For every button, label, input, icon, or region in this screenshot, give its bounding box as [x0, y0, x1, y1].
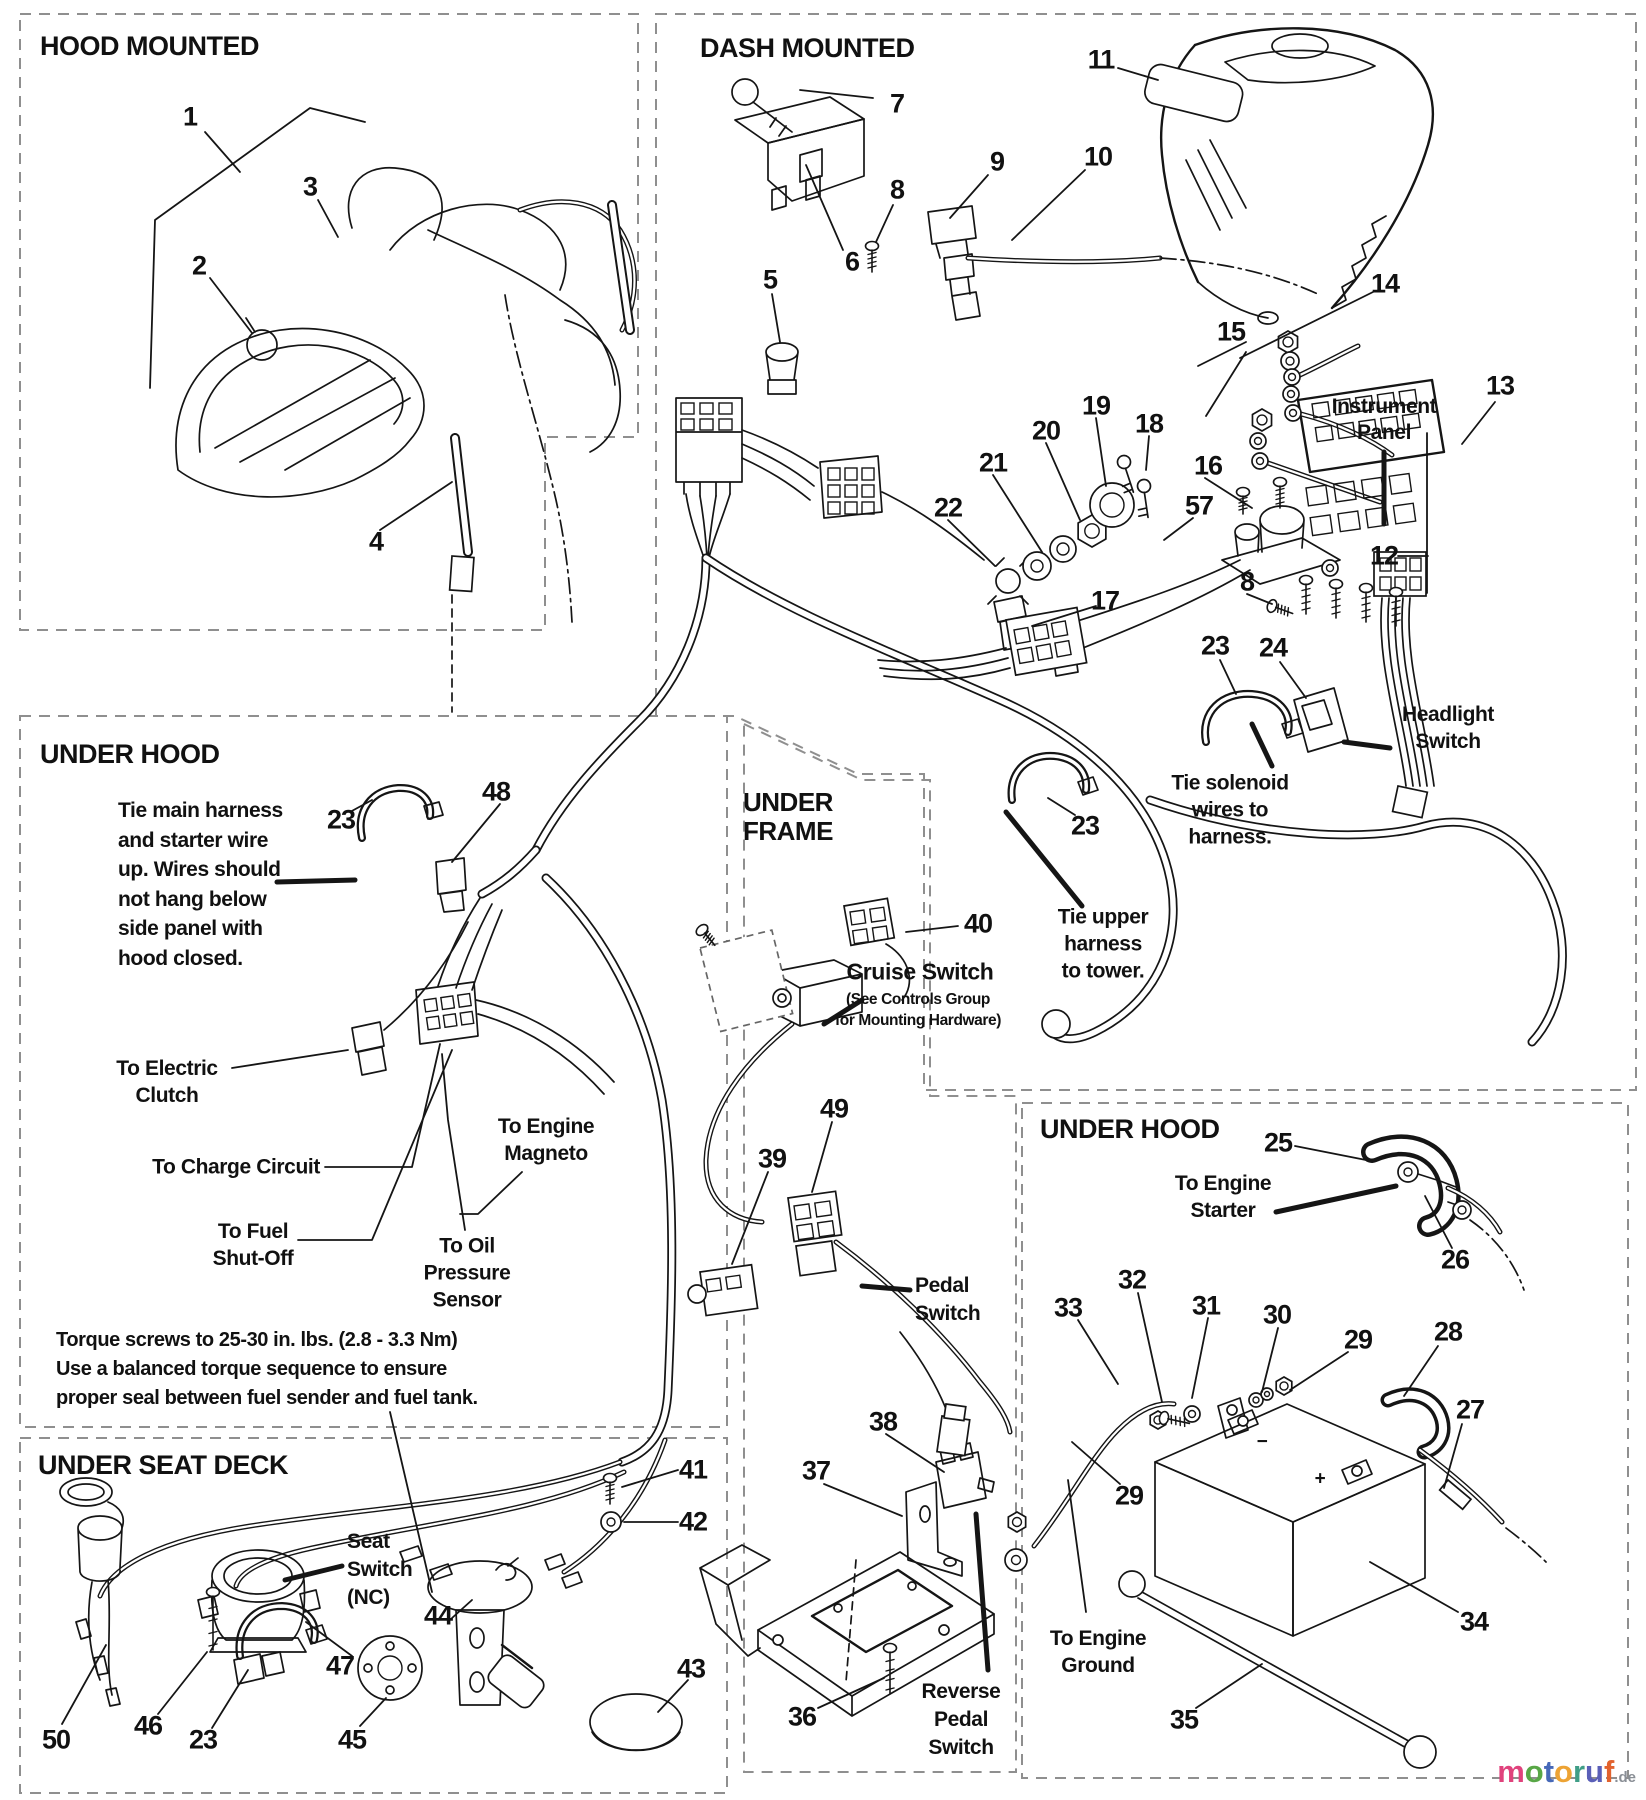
parts-diagram-page: HOOD MOUNTEDDASH MOUNTEDUNDER HOODUNDER …: [0, 0, 1646, 1800]
motoruf-watermark[interactable]: motoruf.de: [1497, 1754, 1636, 1790]
watermark-letter: f: [1604, 1754, 1614, 1789]
part-number-34-54: 34: [1460, 1607, 1488, 1638]
part-number-6-5: 6: [845, 247, 859, 278]
part-number-27-46: 27: [1456, 1395, 1484, 1426]
part-number-40-29: 40: [964, 909, 992, 940]
note-cruise-switch-sub: (See Controls Group for Mounting Hardwar…: [835, 989, 1001, 1031]
note-to-fuel-shut-off: To Fuel Shut-Off: [213, 1218, 294, 1272]
part-number-36-34: 36: [788, 1702, 816, 1733]
part-number-12-11: 12: [1370, 541, 1398, 572]
note-tie-main-note: Tie main harness and starter wire up. Wi…: [118, 796, 283, 973]
part-number-30-49: 30: [1263, 1300, 1291, 1331]
part-number-38-32: 38: [869, 1407, 897, 1438]
part-number-17-16: 17: [1091, 586, 1119, 617]
part-number-4-3: 4: [369, 527, 383, 558]
note-pedal-switch-label: Pedal Switch: [915, 1272, 980, 1328]
watermark-letter: m: [1497, 1754, 1525, 1789]
part-number-22-21: 22: [934, 493, 962, 524]
part-number-15-14: 15: [1217, 317, 1245, 348]
part-number-32-51: 32: [1118, 1265, 1146, 1296]
part-number-9-8: 9: [990, 147, 1004, 178]
note-to-oil-pressure-sensor: To Oil Pressure Sensor: [424, 1233, 511, 1314]
note-to-engine-starter: To Engine Starter: [1175, 1170, 1271, 1224]
part-number-23-25: 23: [1071, 811, 1099, 842]
note-to-engine-ground: To Engine Ground: [1050, 1625, 1146, 1679]
part-number-16-15: 16: [1194, 451, 1222, 482]
watermark-letter: o: [1554, 1754, 1573, 1789]
part-number-46-40: 46: [134, 1711, 162, 1742]
part-number-29-48: 29: [1344, 1325, 1372, 1356]
note-battery-minus: −: [1257, 1433, 1268, 1452]
part-number-44-38: 44: [424, 1601, 452, 1632]
part-number-42-36: 42: [679, 1507, 707, 1538]
part-number-23-43: 23: [189, 1725, 217, 1756]
watermark-letter: u: [1585, 1754, 1604, 1789]
part-number-45-39: 45: [338, 1725, 366, 1756]
note-tie-upper-note: Tie upper harness to tower.: [1058, 904, 1149, 985]
note-torque-note: Torque screws to 25-30 in. lbs. (2.8 - 3…: [56, 1326, 478, 1413]
watermark-letter: t: [1544, 1754, 1554, 1789]
part-number-1-0: 1: [183, 102, 197, 133]
part-number-14-13: 14: [1371, 269, 1399, 300]
note-battery-plus: +: [1315, 1470, 1326, 1489]
part-number-49-30: 49: [820, 1094, 848, 1125]
watermark-letter: r: [1573, 1754, 1585, 1789]
part-number-5-4: 5: [763, 265, 777, 296]
part-number-33-52: 33: [1054, 1293, 1082, 1324]
section-title-dash-mounted: DASH MOUNTED: [700, 33, 915, 63]
note-seat-switch-label: Seat Switch (NC): [347, 1528, 412, 1612]
part-number-29-53: 29: [1115, 1481, 1143, 1512]
section-title-hood-mounted: HOOD MOUNTED: [40, 31, 259, 61]
section-box-hood-mounted: [20, 14, 638, 630]
note-to-engine-magneto: To Engine Magneto: [498, 1113, 594, 1167]
part-number-43-37: 43: [677, 1654, 705, 1685]
part-number-18-17: 18: [1135, 409, 1163, 440]
part-number-35-55: 35: [1170, 1705, 1198, 1736]
note-instrument-panel: Instrument Panel: [1332, 394, 1437, 446]
part-number-2-1: 2: [192, 251, 206, 282]
part-number-13-12: 13: [1486, 371, 1514, 402]
part-number-10-9: 10: [1084, 142, 1112, 173]
part-number-39-31: 39: [758, 1144, 786, 1175]
note-to-electric-clutch: To Electric Clutch: [116, 1055, 217, 1109]
note-headlight-switch-label: Headlight Switch: [1402, 701, 1494, 755]
part-number-8-7: 8: [890, 175, 904, 206]
part-number-26-45: 26: [1441, 1245, 1469, 1276]
note-tie-solenoid-note: Tie solenoid wires to harness.: [1171, 770, 1288, 851]
part-number-11-10: 11: [1088, 45, 1115, 76]
part-number-28-47: 28: [1434, 1317, 1462, 1348]
part-number-23-22: 23: [1201, 631, 1229, 662]
part-number-57-28: 57: [1185, 491, 1213, 522]
part-number-50-42: 50: [42, 1725, 70, 1756]
part-number-25-44: 25: [1264, 1128, 1292, 1159]
part-number-3-2: 3: [303, 172, 317, 203]
part-number-19-18: 19: [1082, 391, 1110, 422]
watermark-suffix: .de: [1614, 1769, 1636, 1786]
part-number-31-50: 31: [1192, 1291, 1220, 1322]
part-number-23-26: 23: [327, 805, 355, 836]
part-number-24-23: 24: [1259, 633, 1287, 664]
part-number-48-27: 48: [482, 777, 510, 808]
watermark-letter: o: [1525, 1754, 1544, 1789]
part-number-41-35: 41: [679, 1455, 707, 1486]
section-title-under-hood-left: UNDER HOOD: [40, 739, 220, 769]
part-number-47-41: 47: [326, 1651, 354, 1682]
part-number-20-19: 20: [1032, 416, 1060, 447]
note-to-charge-circuit: To Charge Circuit: [152, 1154, 320, 1181]
section-title-under-hood-right: UNDER HOOD: [1040, 1114, 1220, 1144]
part-number-7-6: 7: [890, 89, 904, 120]
part-number-8-24: 8: [1240, 567, 1254, 598]
section-title-under-frame: UNDER FRAME: [743, 788, 833, 846]
note-reverse-pedal-switch-label: Reverse Pedal Switch: [922, 1678, 1001, 1762]
note-cruise-switch-label: Cruise Switch: [847, 960, 994, 985]
part-number-21-20: 21: [979, 448, 1007, 479]
section-title-under-seat-deck: UNDER SEAT DECK: [38, 1450, 288, 1480]
section-box-under-seat-deck: [20, 1438, 727, 1793]
part-number-37-33: 37: [802, 1456, 830, 1487]
